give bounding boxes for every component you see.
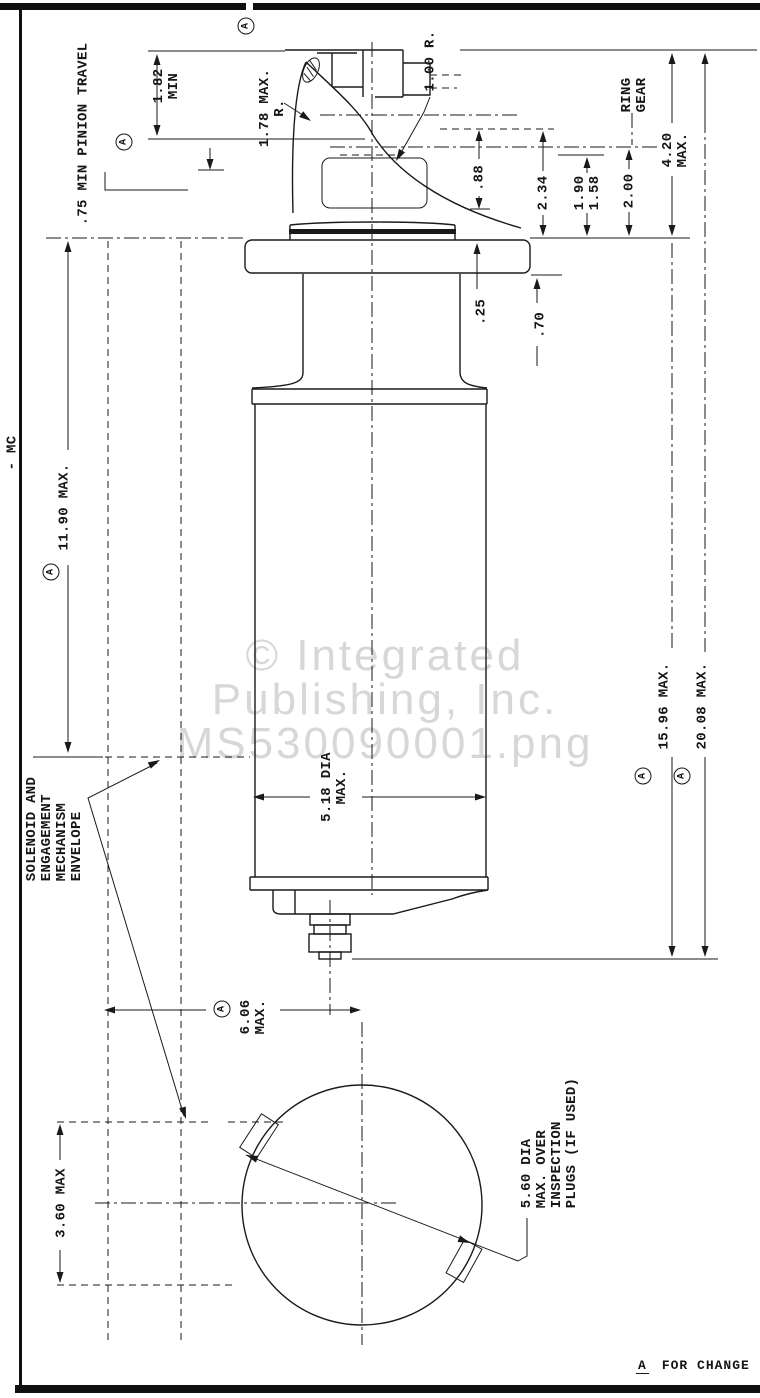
solenoid-leader [88, 757, 189, 1120]
datum-marker-a1: A [116, 134, 133, 151]
label-dim-15-96: 15.96 MAX. [658, 662, 673, 749]
label-dim-1-90-1-58: 1.90 1.58 [573, 176, 603, 211]
label-dim-6-06: 6.06 MAX. [239, 1000, 269, 1035]
label-dim-20-08: 20.08 MAX. [696, 662, 711, 749]
label-dim-3-60: 3.60 MAX [55, 1168, 70, 1238]
label-sheet-side: - MC [6, 436, 21, 471]
label-dim-1-82: 1.82 MIN [152, 69, 182, 104]
datum-marker-a2: A [238, 18, 255, 35]
label-dim-4-20: 4.20 MAX. [661, 133, 691, 168]
drawing-lines [0, 0, 760, 1398]
label-dim-1-00: 1.00 R. [424, 31, 439, 92]
label-dim-2-00: 2.00 [623, 174, 638, 209]
end-view [57, 1007, 528, 1346]
revision-marker: A [636, 1358, 649, 1374]
datum-marker-a5: A [635, 768, 652, 785]
datum-marker-a6: A [674, 768, 691, 785]
label-dim-5-60: 5.60 DIA MAX. OVER INSPECTION PLUGS (IF … [520, 1078, 580, 1209]
dimension-lines-left [46, 238, 243, 753]
revision-text: FOR CHANGE [662, 1358, 750, 1373]
dimension-lines-top [105, 50, 757, 957]
datum-marker-a3: A [43, 564, 60, 581]
label-dim-5-18: 5.18 DIA MAX. [320, 752, 350, 822]
drawing-sheet: © Integrated Publishing, Inc. MS53009000… [0, 0, 760, 1398]
label-dim-0-88: .88 [473, 165, 488, 191]
label-dim-0-25: .25 [475, 299, 490, 325]
datum-marker-a4: A [214, 1001, 231, 1018]
label-pinion-travel: .75 MIN PINION TRAVEL [77, 43, 92, 226]
label-dim-0-70: .70 [534, 312, 549, 338]
label-dim-1-78: 1.78 MAX. R. [258, 69, 288, 147]
dimension-5-18 [253, 794, 486, 801]
label-dim-2-34: 2.34 [537, 176, 552, 211]
label-dim-11-90: 11.90 MAX. [58, 463, 73, 550]
label-solenoid-note: SOLENOID AND ENGAGEMENT MECHANISM ENVELO… [25, 777, 85, 881]
revision-note: A FOR CHANGE [636, 1358, 750, 1374]
label-ring-gear: RING GEAR [620, 78, 650, 113]
